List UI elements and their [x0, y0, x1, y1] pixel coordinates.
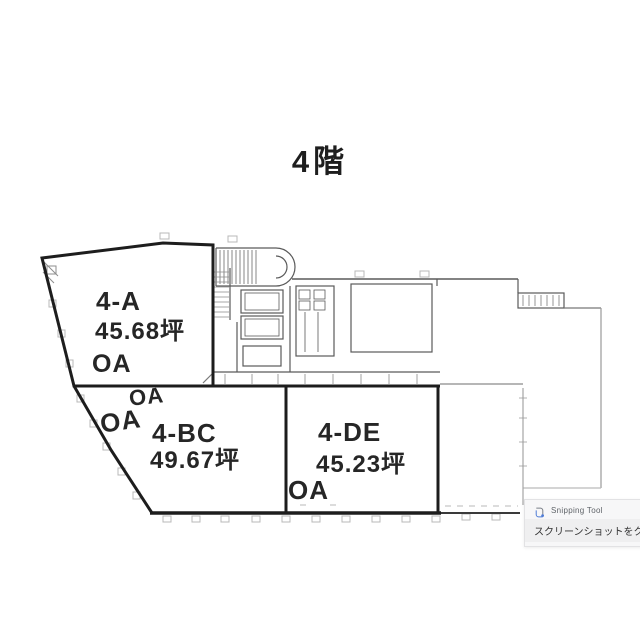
elevator-shafts	[241, 290, 283, 366]
room-4de-name: 4-DE	[318, 419, 381, 445]
snipping-tool-toast[interactable]: Snipping Tool スクリーンショットをクリップボードにコピー	[524, 499, 640, 547]
toast-message: スクリーンショットをクリップボードにコピー	[525, 519, 640, 542]
staircase-outline	[216, 248, 276, 286]
room-4de-oa-label: OA	[288, 477, 329, 503]
staircase-return	[276, 248, 295, 286]
room-4de-area: 45.23坪	[316, 453, 406, 477]
snipping-tool-icon	[534, 505, 545, 516]
toast-app-name: Snipping Tool	[551, 506, 603, 515]
toilet-block	[296, 286, 334, 356]
room-4bc-area: 49.67坪	[150, 449, 240, 473]
room-4bc-name: 4-BC	[152, 420, 217, 446]
machine-room	[351, 284, 432, 352]
room-4a-area: 45.68坪	[95, 320, 185, 344]
staircase-hatch	[220, 250, 256, 284]
screenshot-root: 4階	[0, 0, 640, 640]
room-4bc-oa-lower-label: OA	[98, 405, 142, 436]
walls	[42, 243, 520, 513]
room-4a-name: 4-A	[96, 288, 141, 314]
toast-header: Snipping Tool	[525, 500, 640, 519]
room-4a-oa-label: OA	[92, 352, 132, 377]
